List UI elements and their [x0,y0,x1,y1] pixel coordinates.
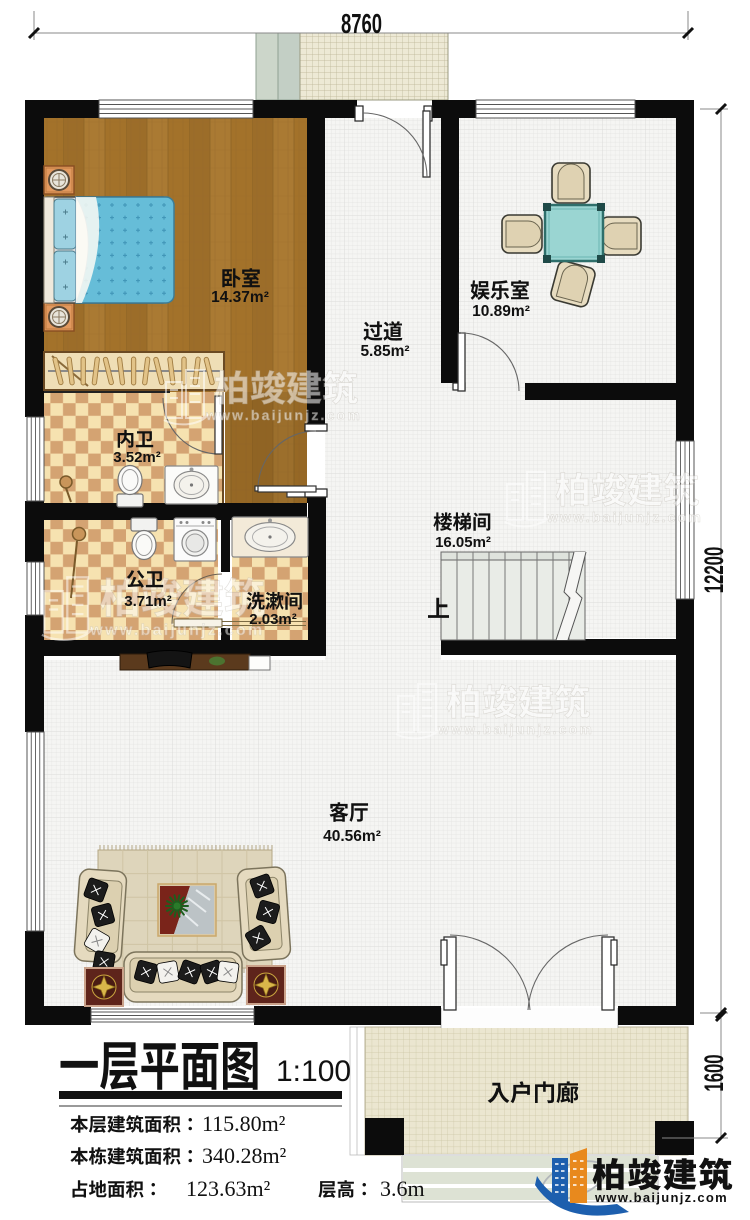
svg-text:340.28m²: 340.28m² [202,1143,287,1168]
svg-text:2.03m²: 2.03m² [249,611,297,628]
svg-text:115.80m²: 115.80m² [202,1111,286,1136]
svg-text:3.6m: 3.6m [380,1176,425,1201]
svg-text:www.baijunjz.com: www.baijunjz.com [437,721,594,737]
svg-text:5.85m²: 5.85m² [360,343,409,360]
svg-text:123.63m²: 123.63m² [186,1176,271,1201]
svg-text:1:100: 1:100 [276,1055,351,1088]
svg-text:www.baijunjz.com: www.baijunjz.com [205,407,362,423]
svg-text:10.89m²: 10.89m² [472,303,530,320]
svg-text:12200: 12200 [699,547,729,594]
svg-text:40.56m²: 40.56m² [323,828,381,845]
svg-text:1600: 1600 [699,1054,729,1091]
svg-text:3.52m²: 3.52m² [113,449,161,466]
svg-text:14.37m²: 14.37m² [211,289,269,306]
svg-text:www.baijunjz.com: www.baijunjz.com [546,509,703,525]
svg-text:www.baijunjz.com: www.baijunjz.com [89,621,264,639]
svg-text:3.71m²: 3.71m² [124,593,172,610]
svg-text:8760: 8760 [341,9,382,40]
svg-text:www.baijunjz.com: www.baijunjz.com [594,1190,728,1205]
svg-text:16.05m²: 16.05m² [435,534,491,551]
